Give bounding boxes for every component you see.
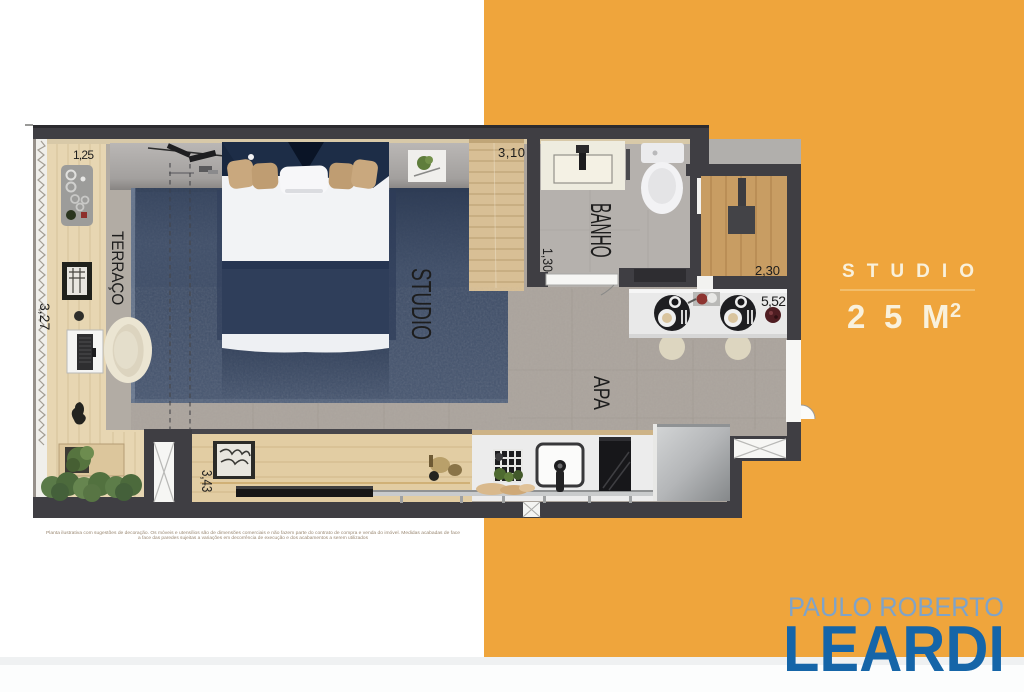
svg-text:3,27: 3,27 [37, 303, 53, 330]
svg-text:TERRAÇO: TERRAÇO [108, 231, 126, 305]
svg-text:5,52: 5,52 [761, 293, 786, 309]
svg-text:LEARDI: LEARDI [783, 612, 1005, 685]
svg-text:3,43: 3,43 [199, 470, 216, 492]
svg-text:BANHO: BANHO [585, 203, 617, 258]
svg-text:1,30: 1,30 [540, 248, 556, 272]
svg-text:2,30: 2,30 [755, 263, 780, 278]
svg-text:a face das paredes sujeitas a: a face das paredes sujeitas a variações … [138, 535, 369, 540]
svg-text:APA: APA [588, 376, 612, 411]
svg-text:STUDIO: STUDIO [405, 268, 437, 340]
svg-text:3,10: 3,10 [498, 145, 525, 160]
svg-text:1,25: 1,25 [73, 148, 94, 162]
